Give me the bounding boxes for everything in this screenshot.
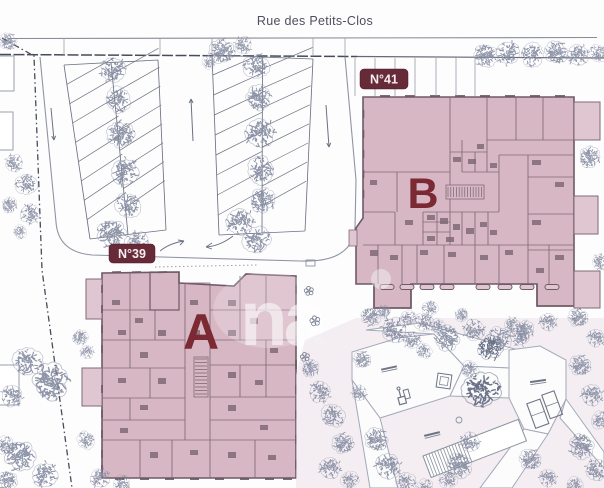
svg-text:Rue des Petits-Clos: Rue des Petits-Clos — [257, 14, 373, 28]
svg-text:N°41: N°41 — [370, 73, 398, 87]
svg-text:B: B — [407, 170, 438, 218]
svg-text:N°39: N°39 — [118, 247, 146, 261]
